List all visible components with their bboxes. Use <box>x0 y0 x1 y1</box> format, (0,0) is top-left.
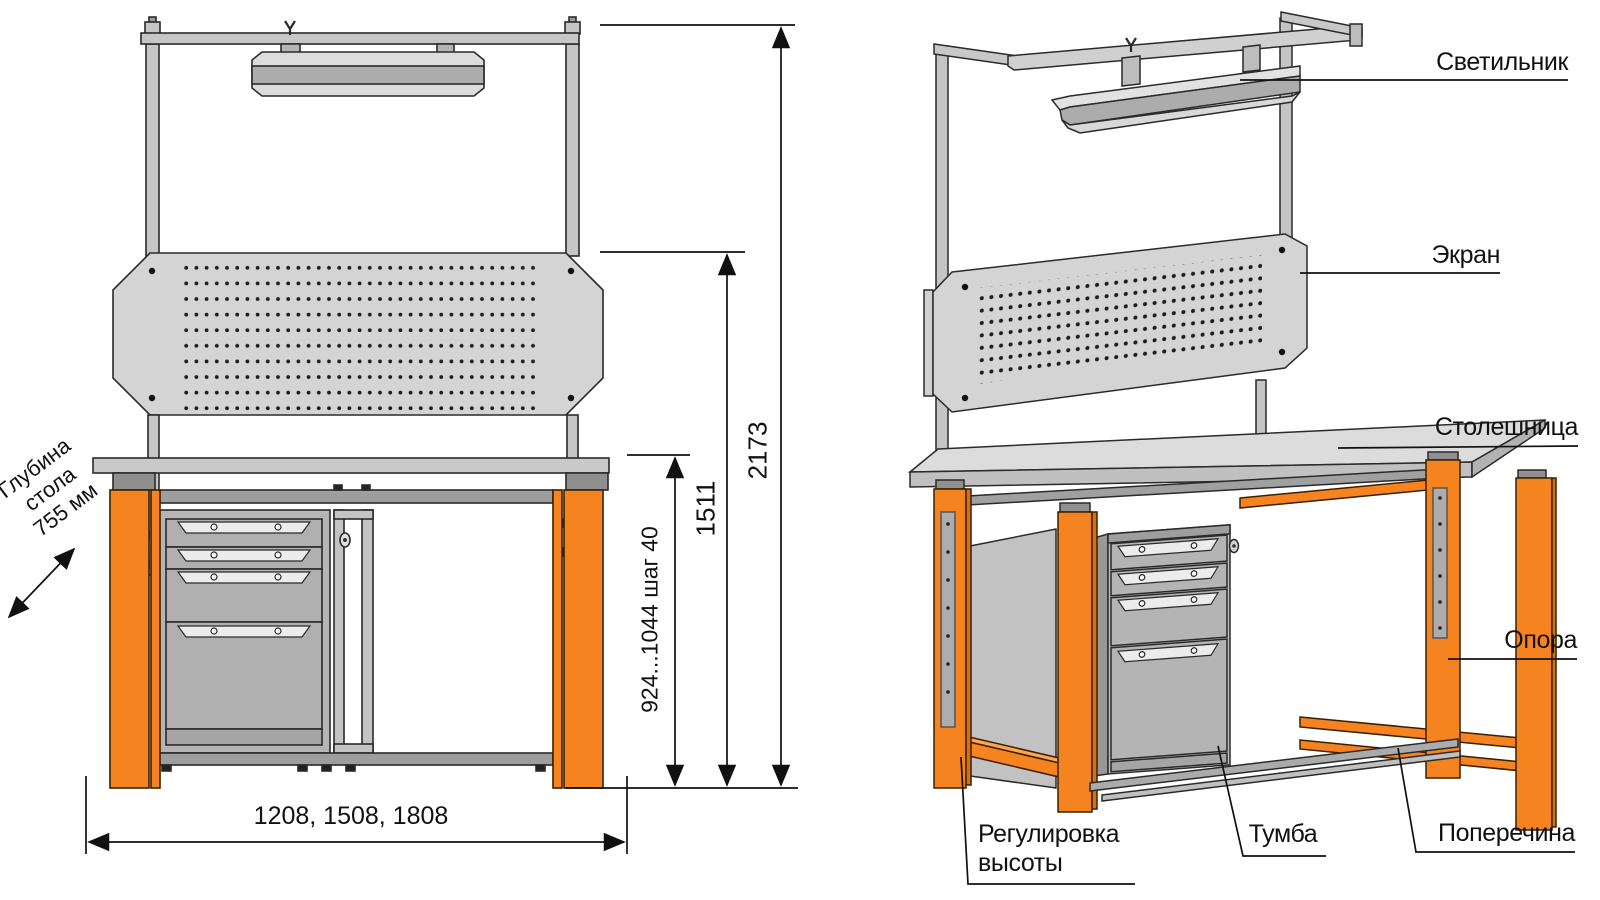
workbench-diagram: 2173 1511 924...1044 шаг 40 1208, 1508, … <box>0 0 1600 900</box>
callout-tabletop: Столешница <box>1398 413 1578 442</box>
dim-width-options: 1208, 1508, 1808 <box>226 802 476 831</box>
callout-height-adjust: Регулировка высоты <box>978 820 1153 878</box>
dim-total-height: 2173 <box>743 391 774 511</box>
dim-table-height: 924...1044 шаг 40 <box>637 500 664 740</box>
callout-crossbar: Поперечина <box>1395 819 1575 848</box>
callout-lamp: Светильник <box>1380 48 1568 77</box>
dim-screen-height: 1511 <box>691 449 722 569</box>
iso-screen-panel <box>924 234 1307 436</box>
front-view <box>9 17 798 854</box>
lock-icon-iso <box>1230 540 1239 553</box>
diagram-drawing <box>0 0 1600 900</box>
front-cabinet <box>157 510 373 753</box>
front-tabletop <box>93 458 609 503</box>
front-screen-panel <box>113 253 603 415</box>
lock-icon <box>340 533 350 547</box>
iso-cabinet <box>1094 525 1239 776</box>
iso-view <box>910 12 1578 884</box>
front-crossbar <box>159 753 553 771</box>
callout-support: Опора <box>1437 626 1577 655</box>
front-lamp <box>252 44 484 96</box>
callout-cabinet: Тумба <box>1240 820 1326 849</box>
callout-screen: Экран <box>1360 241 1500 270</box>
